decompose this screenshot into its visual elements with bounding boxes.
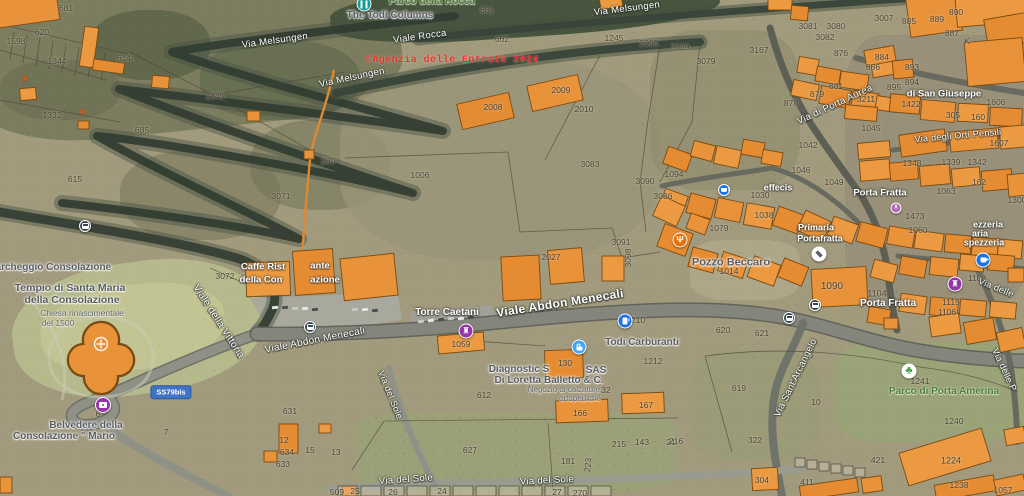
- cup-glyph: [721, 188, 727, 193]
- bus-stop-icon[interactable]: [783, 312, 795, 324]
- fuel-icon[interactable]: [618, 314, 633, 329]
- tower-glyph: ♜: [462, 327, 470, 336]
- bus-glyph: [786, 315, 793, 321]
- poi-icon-layer: ♜♜♜Ψ♣⚑⚑: [0, 0, 1024, 496]
- bus-glyph: [307, 324, 314, 330]
- monument-icon[interactable]: ♜: [948, 277, 963, 292]
- photo-spot-icon[interactable]: [95, 397, 111, 413]
- camera-glyph: [99, 402, 107, 408]
- bus-stop-icon[interactable]: [809, 299, 821, 311]
- cafe-icon[interactable]: [718, 184, 730, 196]
- school-glyph: [815, 250, 822, 257]
- fuel-glyph: [622, 318, 628, 325]
- lock-glyph: [576, 346, 582, 351]
- flag-icon: ⚑: [21, 76, 30, 86]
- bus-stop-icon[interactable]: [304, 321, 316, 333]
- tower-monument-icon[interactable]: ♜: [459, 324, 474, 339]
- cup-glyph: [980, 258, 986, 263]
- tower-glyph: ♜: [951, 280, 959, 289]
- park-icon[interactable]: ♣: [902, 364, 917, 379]
- flag-icon: ⚑: [79, 109, 88, 119]
- cafe-icon[interactable]: [976, 253, 991, 268]
- bus-stop-icon[interactable]: [79, 220, 91, 232]
- shop-icon[interactable]: [572, 340, 587, 355]
- tree-glyph: ♣: [905, 366, 912, 377]
- bus-glyph: [812, 302, 819, 308]
- tower-glyph: ♜: [894, 206, 898, 211]
- restaurant-icon[interactable]: Ψ: [673, 233, 688, 248]
- bus-glyph: [82, 223, 89, 229]
- fork-glyph: Ψ: [676, 236, 683, 245]
- monument-icon[interactable]: ♜: [891, 203, 902, 214]
- map-canvas[interactable]: Parco della RoccaThe Todi ColumnsParcheg…: [0, 0, 1024, 496]
- todi-columns-icon[interactable]: [357, 0, 372, 12]
- school-icon[interactable]: [812, 247, 827, 262]
- columns-glyph: [361, 0, 368, 8]
